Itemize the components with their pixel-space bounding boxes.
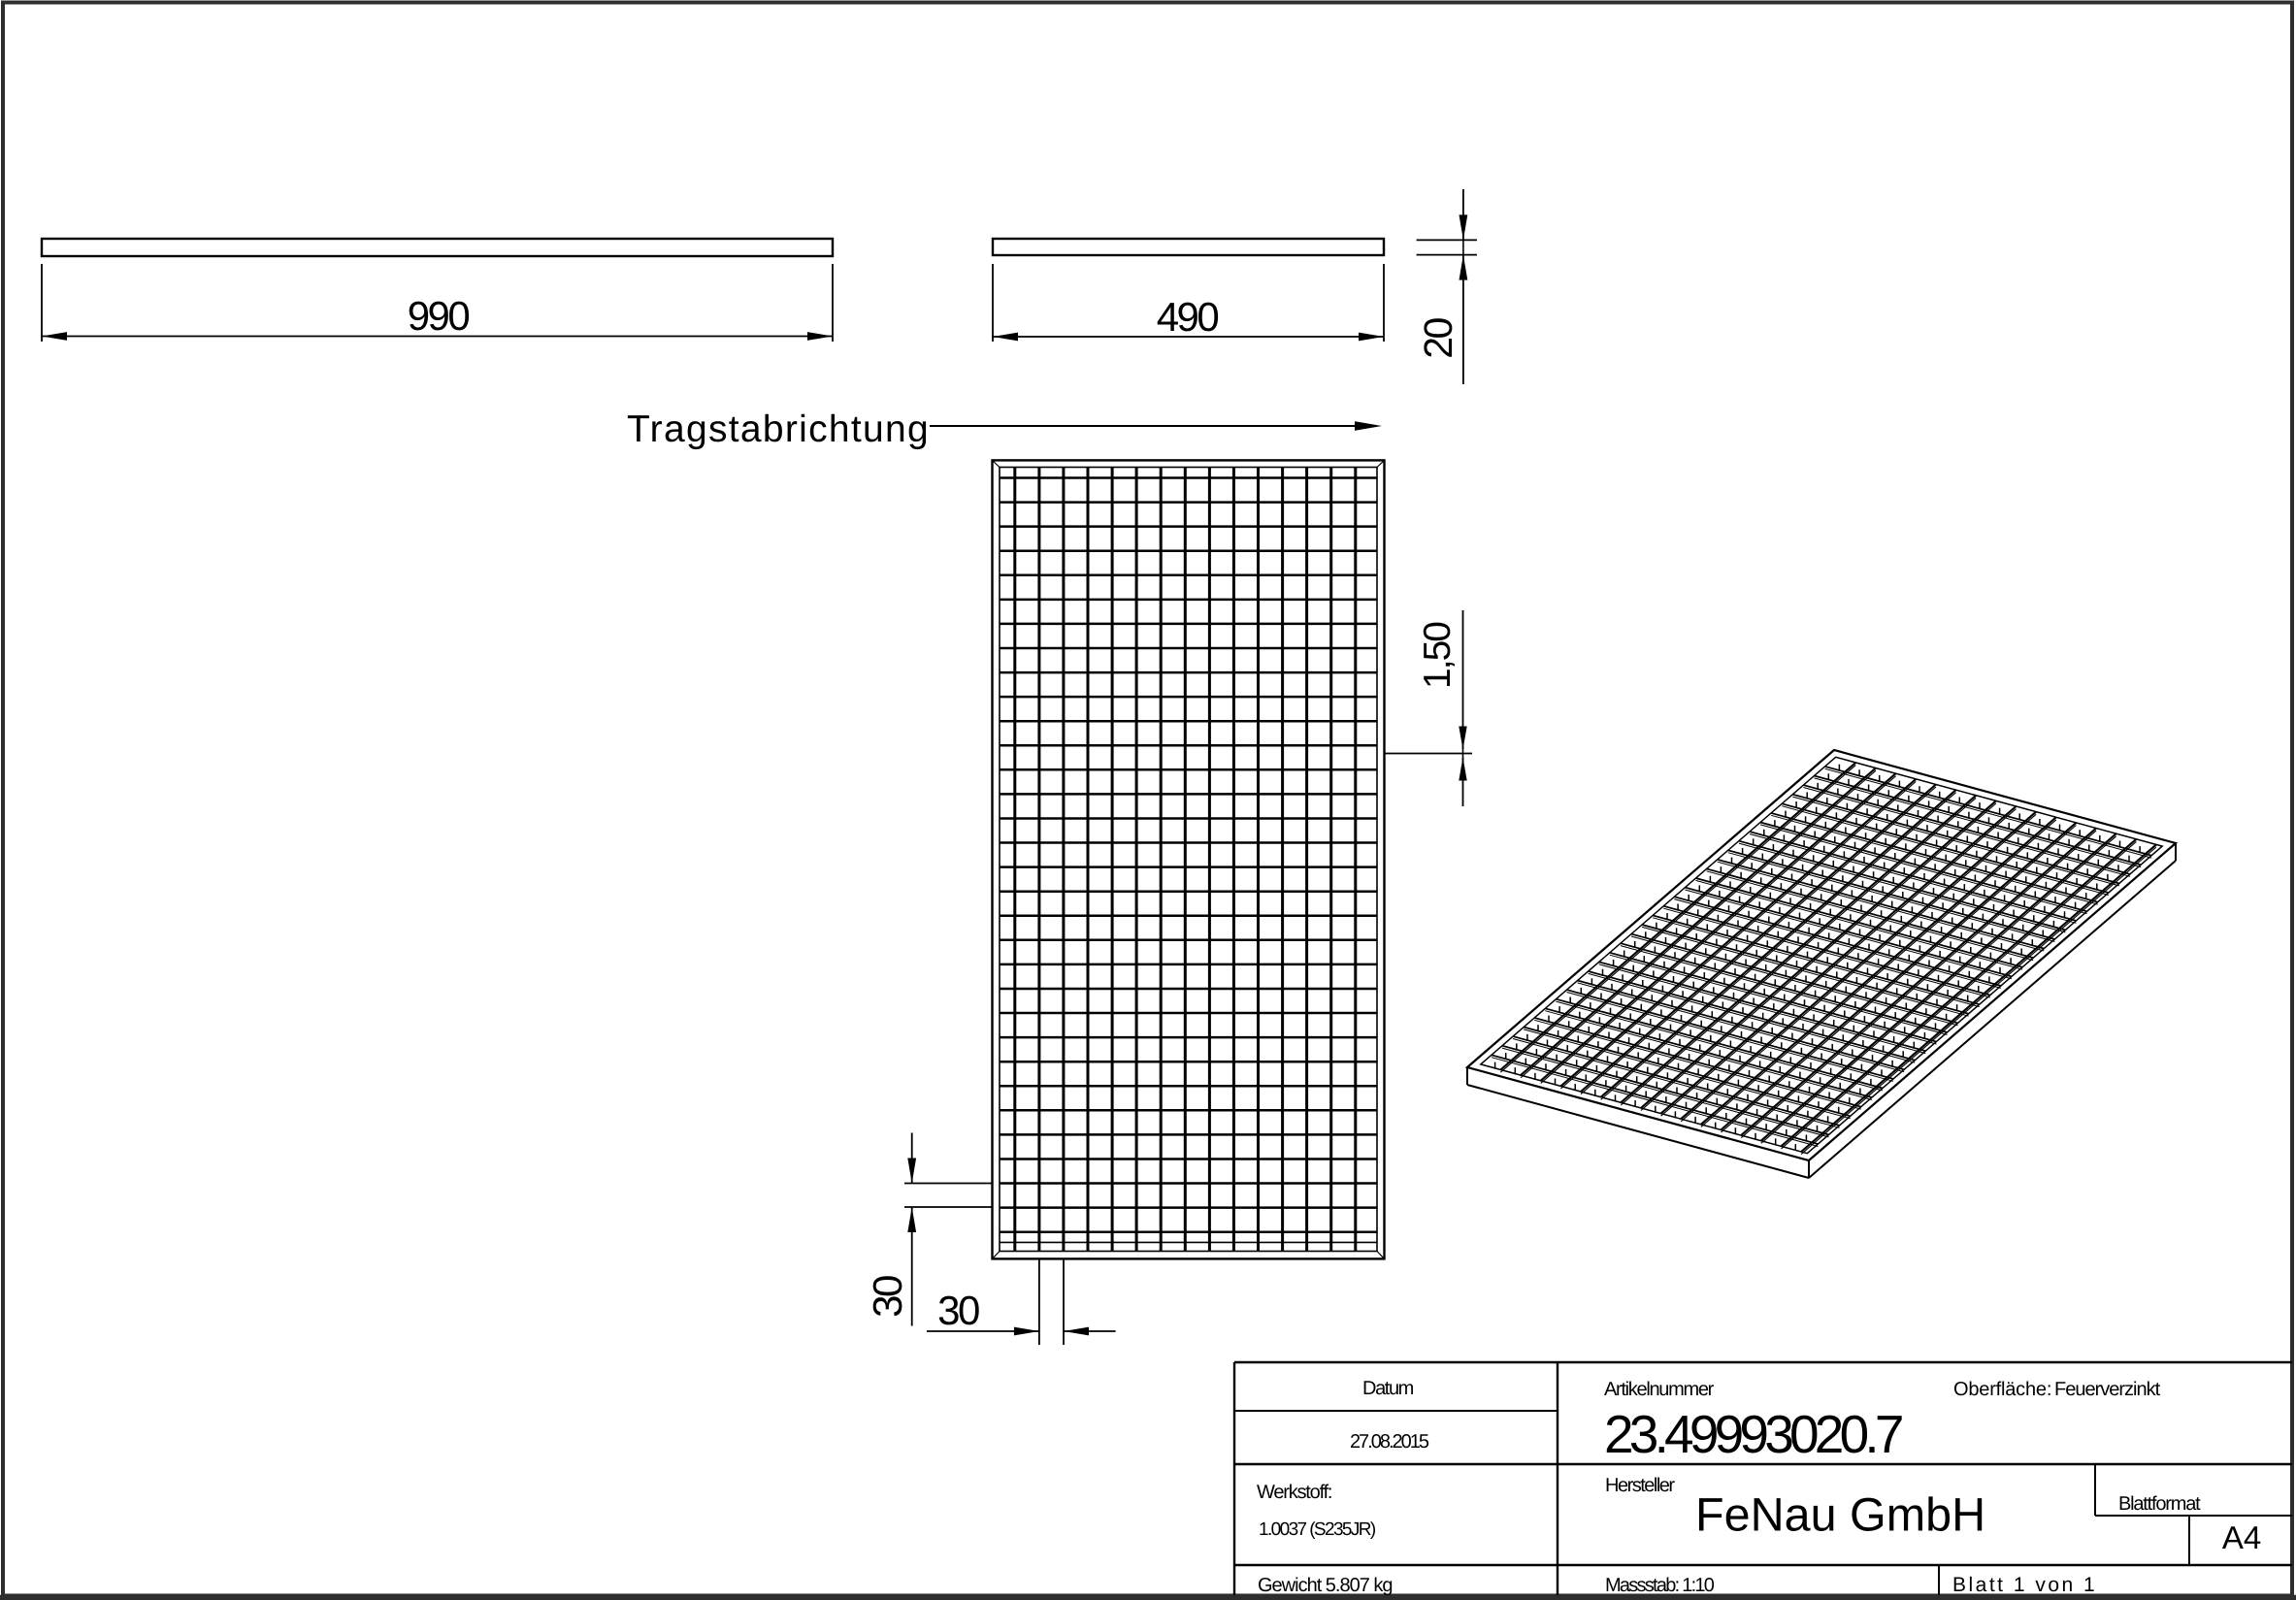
svg-text:Gewicht 5.807 kg: Gewicht 5.807 kg xyxy=(1258,1575,1393,1596)
svg-text:30: 30 xyxy=(937,1288,979,1333)
svg-text:30: 30 xyxy=(865,1276,910,1318)
svg-text:990: 990 xyxy=(408,293,470,339)
svg-text:1,50: 1,50 xyxy=(1417,622,1459,689)
svg-text:A4: A4 xyxy=(2222,1519,2261,1555)
svg-text:Blatt 1 von 1: Blatt 1 von 1 xyxy=(1952,1574,2097,1596)
svg-text:Blattformat: Blattformat xyxy=(2118,1493,2201,1515)
svg-text:27.08.2015: 27.08.2015 xyxy=(1350,1431,1429,1453)
svg-text:Feuerverzinkt: Feuerverzinkt xyxy=(2054,1379,2161,1400)
svg-text:23.49993020.7: 23.49993020.7 xyxy=(1604,1404,1902,1464)
svg-text:20: 20 xyxy=(1416,318,1460,359)
svg-text:1.0037 (S235JR): 1.0037 (S235JR) xyxy=(1259,1519,1376,1540)
svg-text:Werkstoff:: Werkstoff: xyxy=(1257,1482,1331,1503)
svg-text:Artikelnummer: Artikelnummer xyxy=(1604,1379,1715,1400)
svg-text:Massstab: 1:10: Massstab: 1:10 xyxy=(1605,1575,1715,1596)
svg-text:490: 490 xyxy=(1157,294,1219,340)
svg-text:FeNau GmbH: FeNau GmbH xyxy=(1695,1489,1985,1542)
svg-text:Datum: Datum xyxy=(1362,1378,1414,1399)
svg-text:Oberfläche:: Oberfläche: xyxy=(1953,1379,2051,1400)
svg-text:Tragstabrichtung: Tragstabrichtung xyxy=(627,408,930,450)
svg-text:Hersteller: Hersteller xyxy=(1605,1475,1675,1496)
